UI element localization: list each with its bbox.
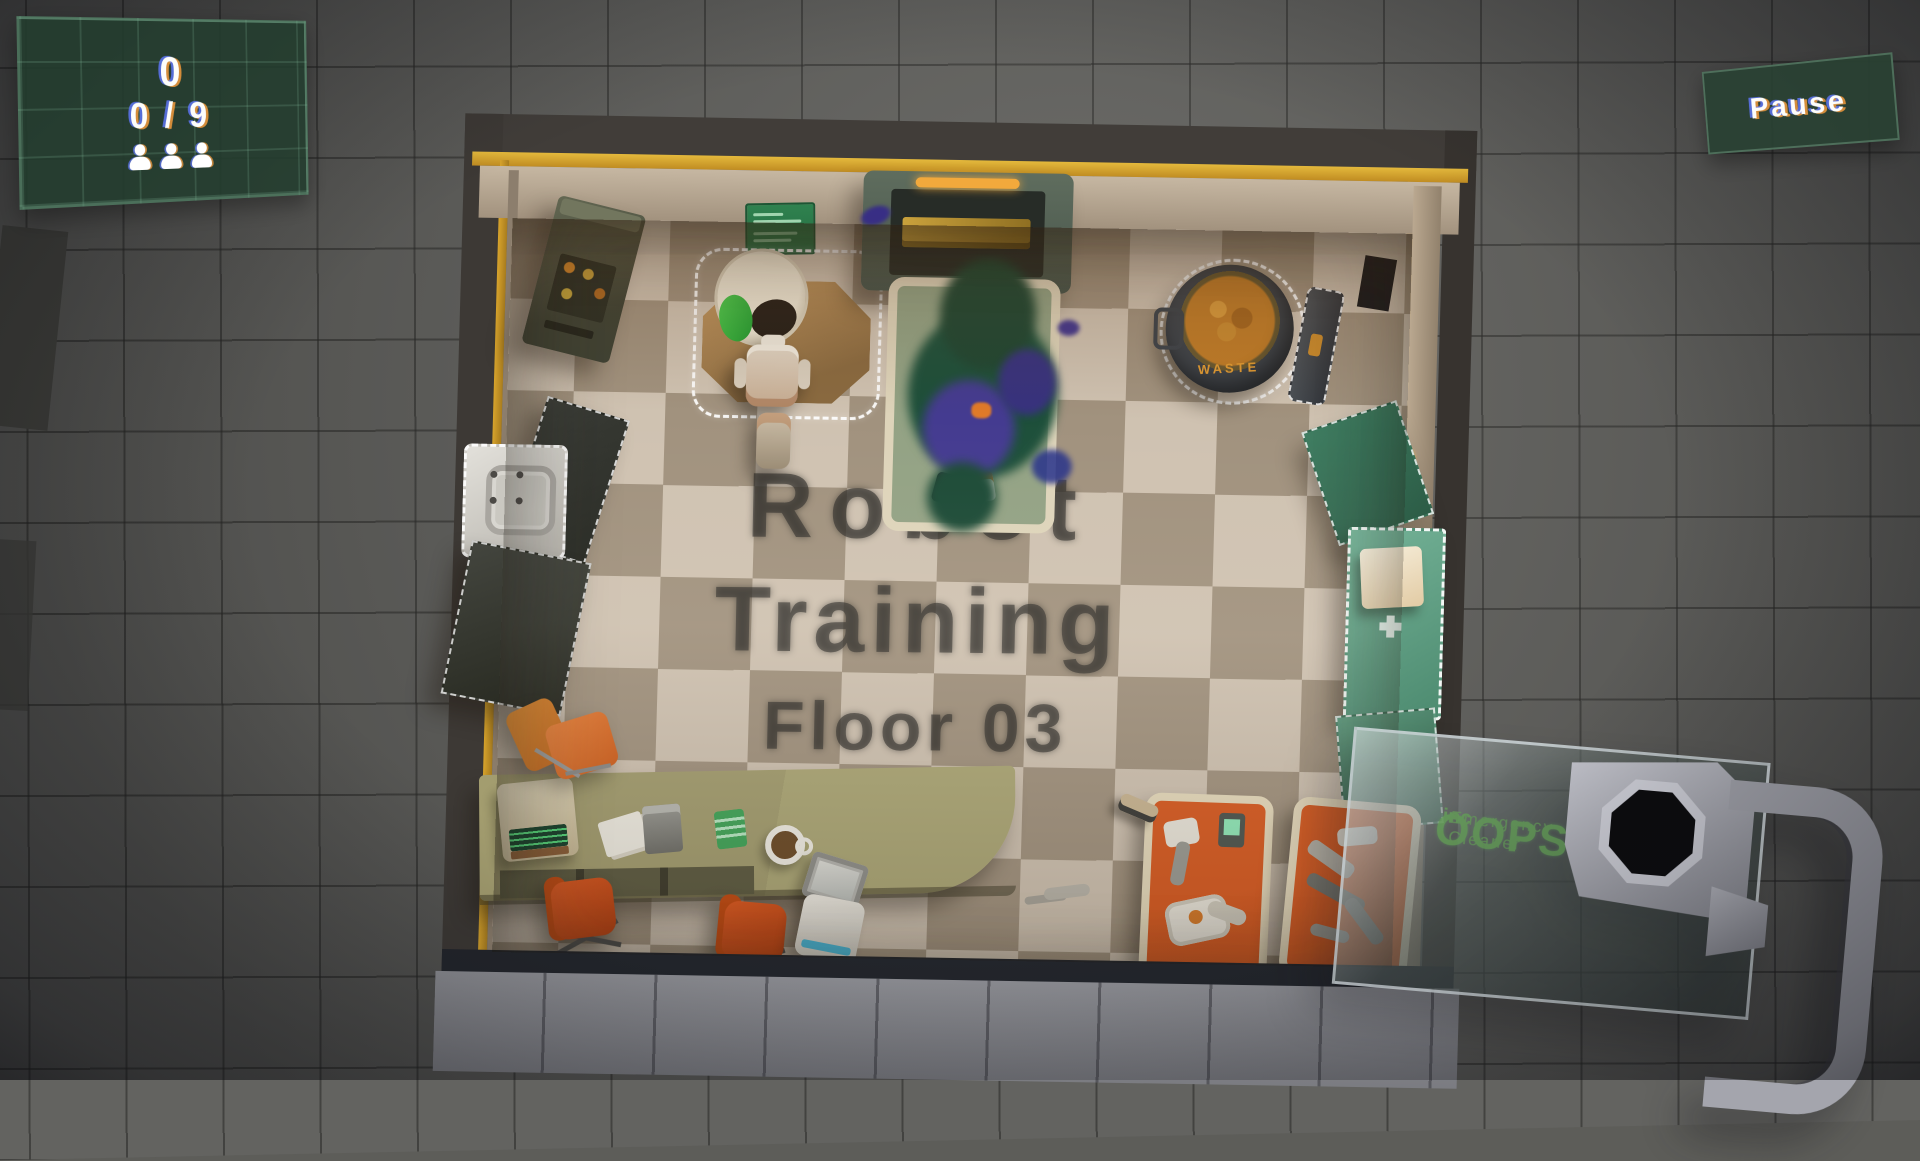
person-icon [160, 143, 183, 170]
floor-shading [492, 218, 1412, 967]
emergency-cleaner-tool[interactable]: OOPS!inc Emergency Cleaner [1308, 703, 1876, 1097]
person-icon [128, 144, 151, 172]
progress-value: 0 / 9 [129, 96, 210, 137]
pause-label: Pause [1749, 83, 1848, 126]
crew-icons [124, 142, 217, 172]
device-handle[interactable] [1702, 780, 1888, 1121]
scanner-light-bar [916, 177, 1020, 189]
hud-stats-panel: 0 0 / 9 [16, 16, 308, 210]
score-value: 0 [159, 51, 181, 95]
wall-face-bottom [433, 971, 1460, 1089]
person-icon [191, 142, 213, 169]
